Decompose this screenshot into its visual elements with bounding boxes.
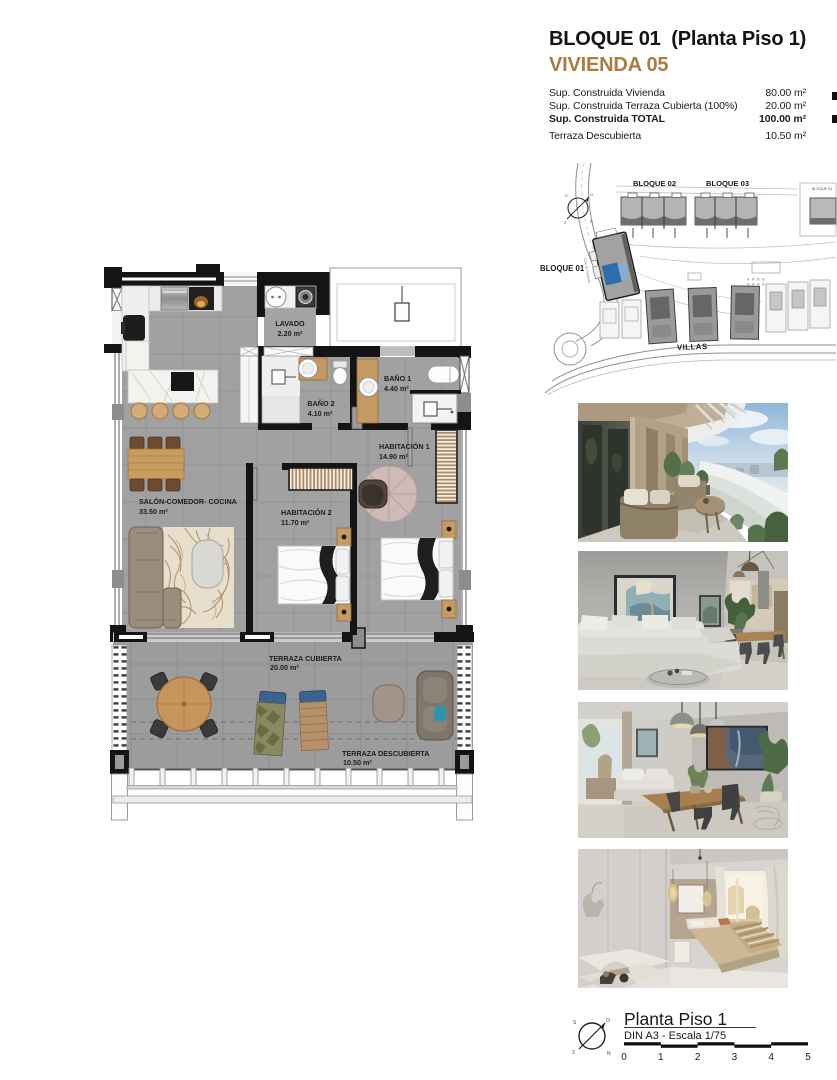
svg-text:3: 3 [564, 220, 567, 225]
svg-text:20.00 m²: 20.00 m² [270, 663, 299, 672]
svg-text:LAVADO: LAVADO [275, 319, 305, 328]
svg-text:4.40 m²: 4.40 m² [384, 384, 409, 393]
svg-text:BAÑO 2: BAÑO 2 [307, 399, 334, 408]
svg-text:14.90 m²: 14.90 m² [379, 452, 408, 461]
svg-text:HABITACIÓN 2: HABITACIÓN 2 [281, 508, 332, 517]
svg-text:BLOQUE 04: BLOQUE 04 [812, 187, 832, 191]
svg-text:BLOQUE 02: BLOQUE 02 [633, 179, 676, 188]
svg-text:S: S [573, 1020, 577, 1026]
svg-text:10.50 m²: 10.50 m² [343, 758, 372, 767]
svg-text:4.10 m²: 4.10 m² [308, 409, 333, 418]
svg-text:N: N [607, 1051, 611, 1057]
svg-text:11.70 m²: 11.70 m² [281, 518, 310, 527]
svg-text:1: 1 [658, 1052, 664, 1063]
svg-text:0: 0 [621, 1052, 627, 1063]
svg-text:4: 4 [768, 1052, 774, 1063]
svg-text:SALÓN-COMEDOR- COCINA: SALÓN-COMEDOR- COCINA [139, 497, 237, 506]
svg-text:BAÑO 1: BAÑO 1 [384, 374, 411, 383]
svg-text:BLOQUE 03: BLOQUE 03 [706, 179, 749, 188]
svg-text:33.50 m²: 33.50 m² [139, 507, 168, 516]
svg-text:O: O [590, 192, 593, 197]
svg-text:N: N [590, 219, 593, 224]
svg-text:2.20 m²: 2.20 m² [278, 329, 303, 338]
svg-text:5: 5 [805, 1052, 811, 1063]
svg-text:3: 3 [732, 1052, 738, 1063]
svg-text:2: 2 [695, 1052, 701, 1063]
svg-text:BLOQUE 01: BLOQUE 01 [540, 264, 585, 273]
svg-text:O: O [606, 1018, 610, 1024]
svg-text:TERRAZA CUBIERTA: TERRAZA CUBIERTA [269, 654, 342, 663]
svg-text:S: S [565, 193, 568, 198]
svg-text:HABITACIÓN 1: HABITACIÓN 1 [379, 442, 430, 451]
svg-text:TERRAZA DESCUBIERTA: TERRAZA DESCUBIERTA [342, 749, 429, 758]
svg-text:VILLAS: VILLAS [677, 342, 708, 352]
svg-text:Calle de Gardenia: Calle de Gardenia [583, 257, 591, 283]
svg-text:3: 3 [572, 1050, 575, 1056]
